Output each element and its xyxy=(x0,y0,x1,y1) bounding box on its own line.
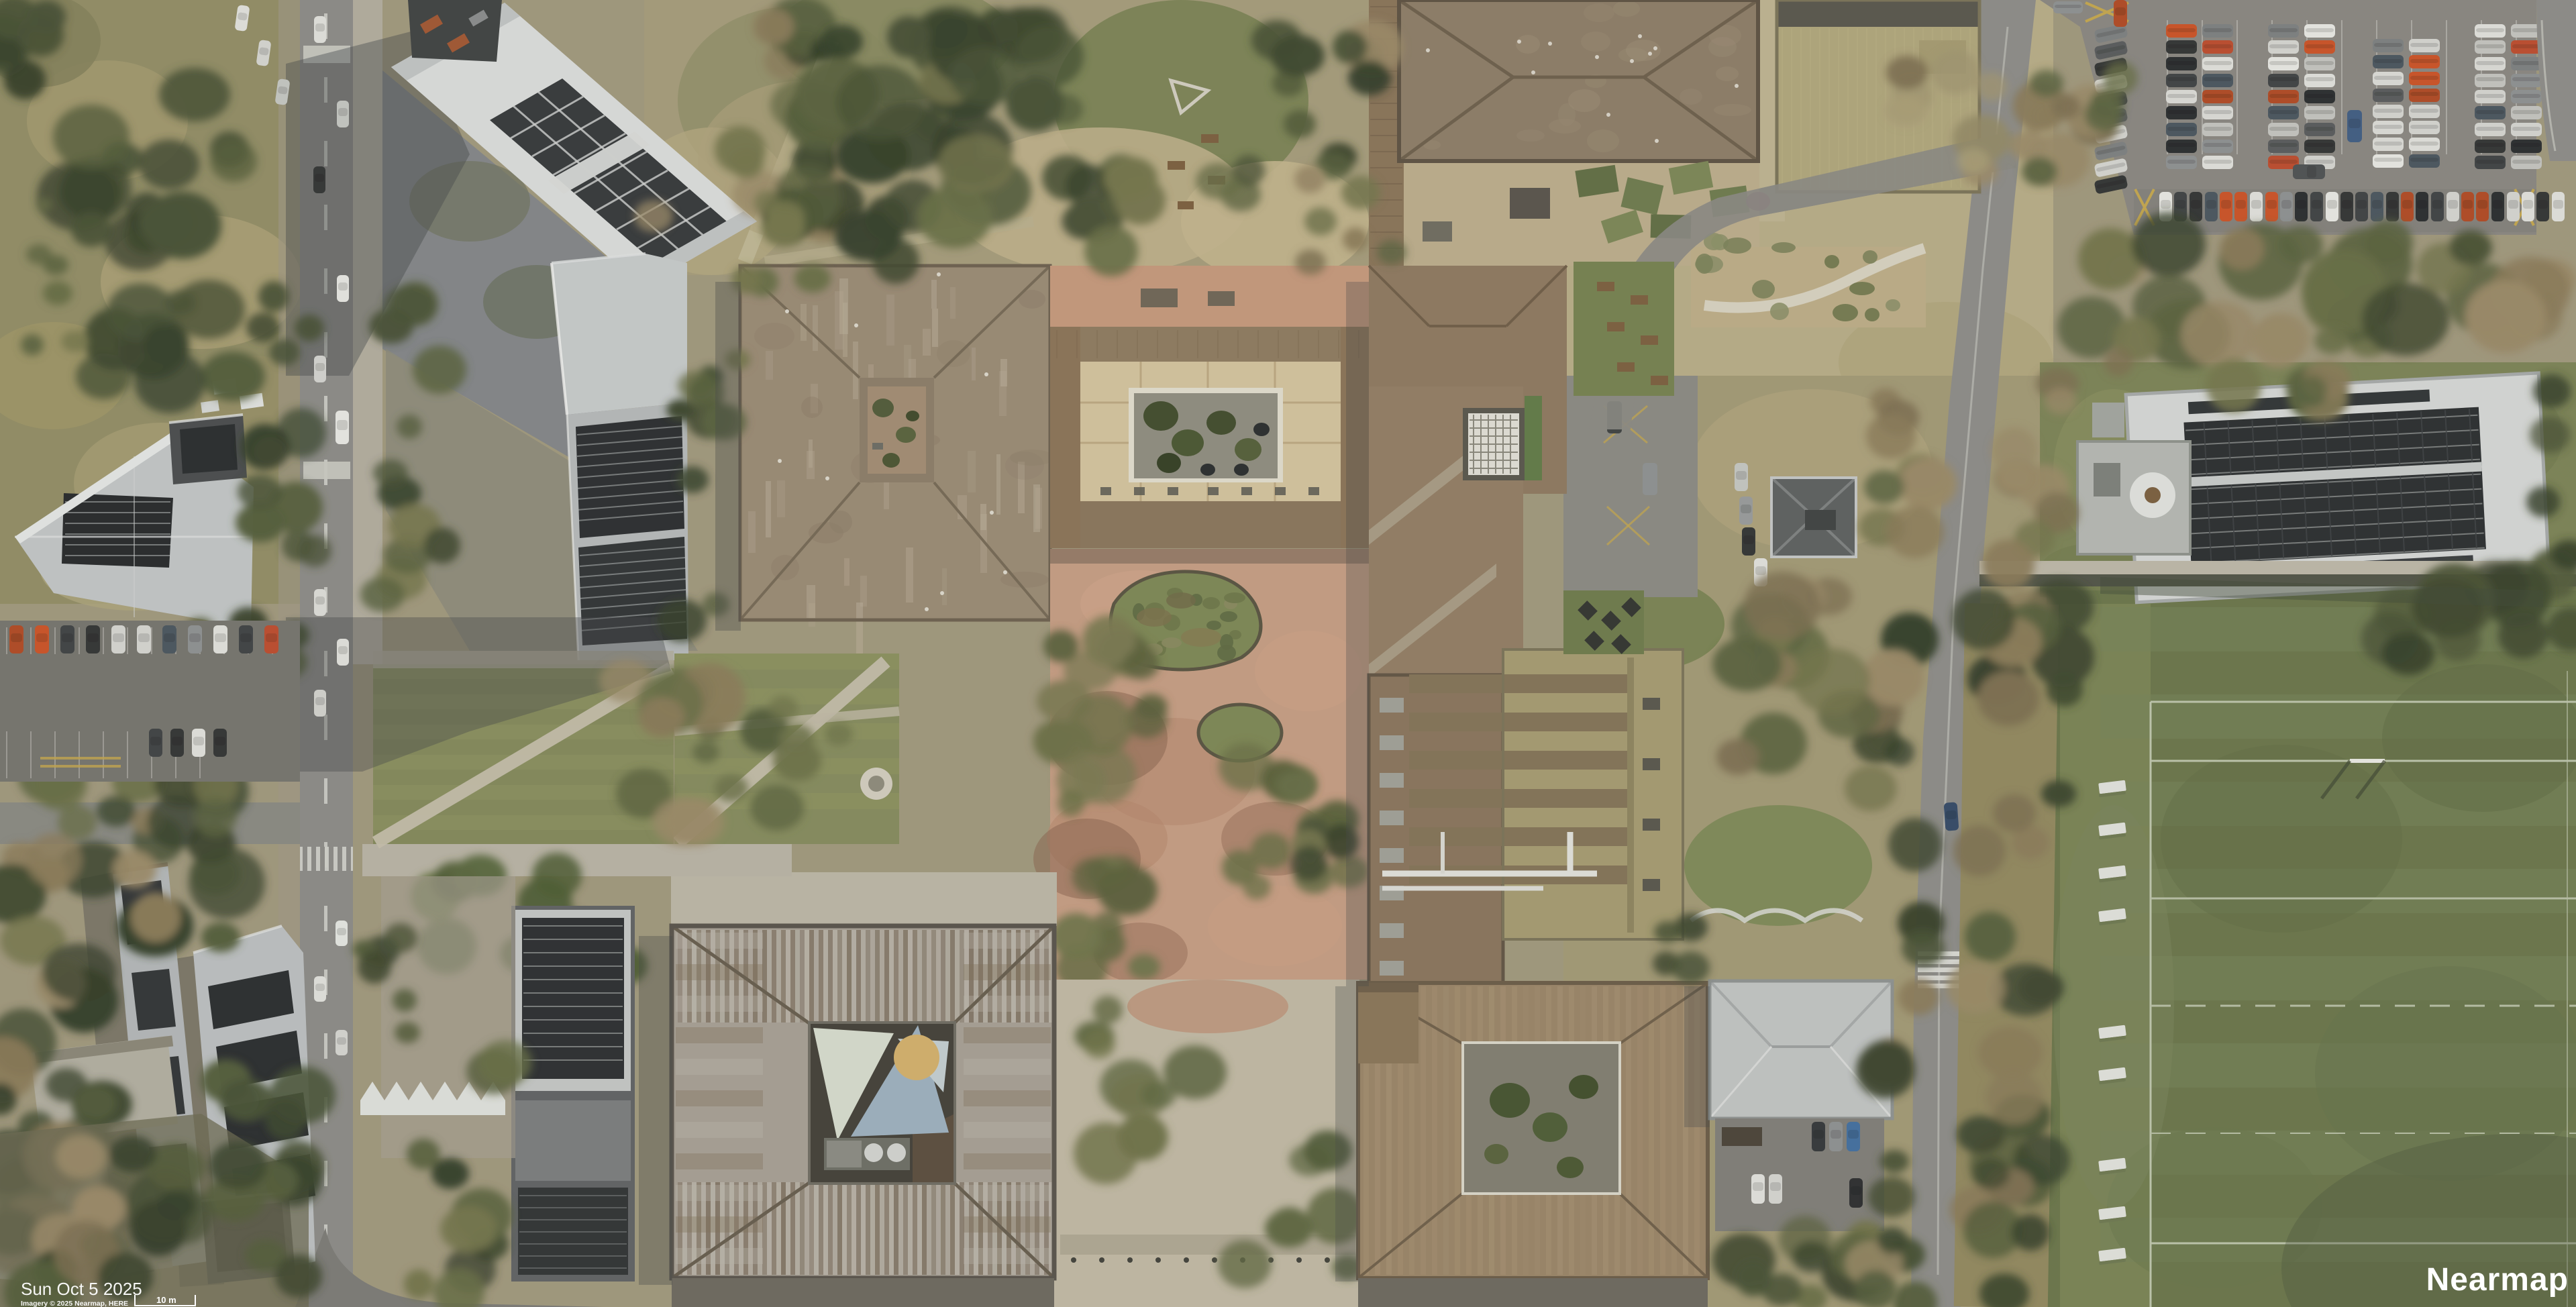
svg-text:Sun Oct 5 2025: Sun Oct 5 2025 xyxy=(21,1279,142,1299)
svg-text:Imagery © 2025 Nearmap, HERE: Imagery © 2025 Nearmap, HERE xyxy=(21,1300,128,1307)
svg-text:10 m: 10 m xyxy=(156,1295,176,1305)
svg-text:Nearmap: Nearmap xyxy=(2426,1262,2569,1298)
